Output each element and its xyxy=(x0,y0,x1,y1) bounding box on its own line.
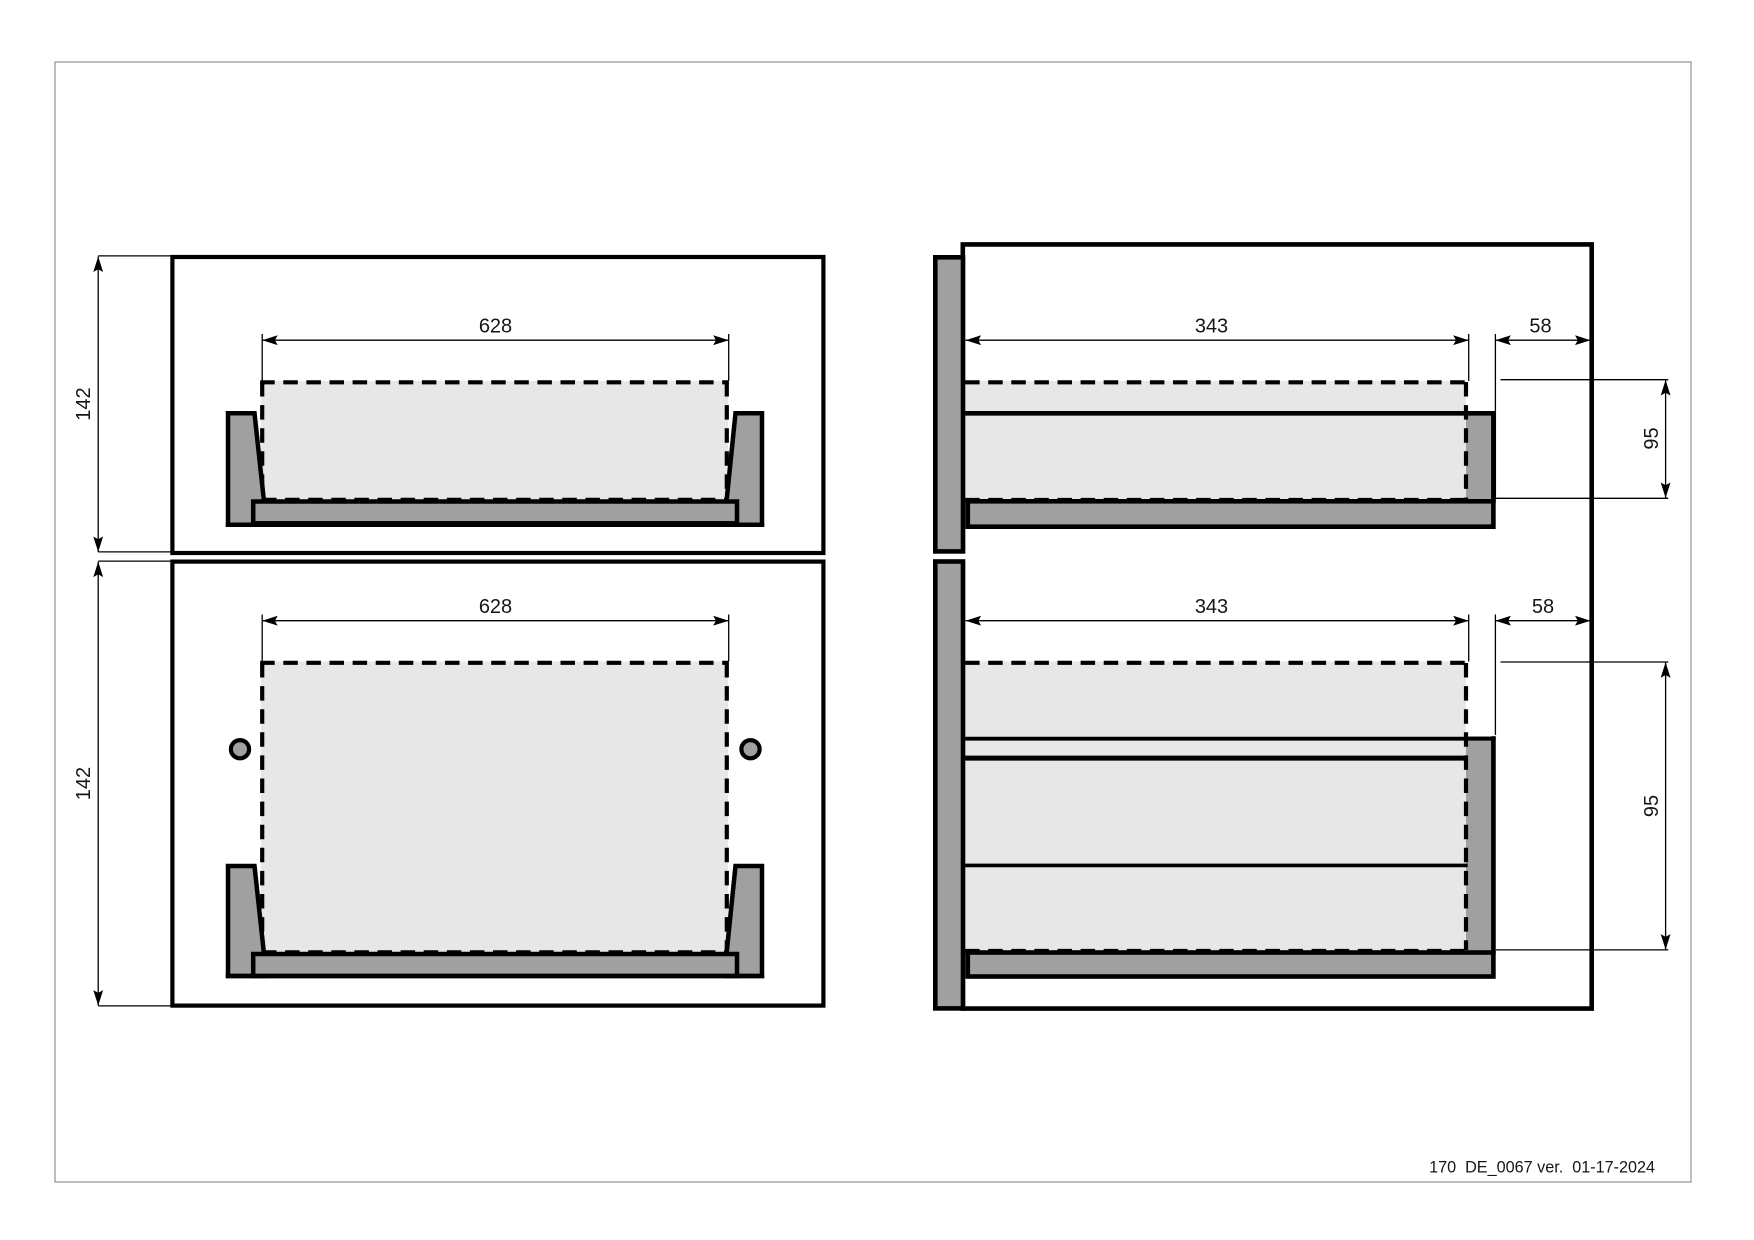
svg-text:628: 628 xyxy=(479,596,512,618)
svg-text:95: 95 xyxy=(1641,427,1663,449)
svg-text:170 DE_0067 ver. 01-17-2024: 170 DE_0067 ver. 01-17-2024 xyxy=(1429,1158,1655,1176)
svg-text:343: 343 xyxy=(1195,596,1228,618)
svg-text:343: 343 xyxy=(1195,316,1228,338)
svg-text:58: 58 xyxy=(1529,316,1551,338)
svg-text:142: 142 xyxy=(73,767,95,800)
svg-text:95: 95 xyxy=(1641,795,1663,817)
svg-text:628: 628 xyxy=(479,316,512,338)
svg-text:58: 58 xyxy=(1532,596,1554,618)
svg-text:142: 142 xyxy=(73,387,95,420)
